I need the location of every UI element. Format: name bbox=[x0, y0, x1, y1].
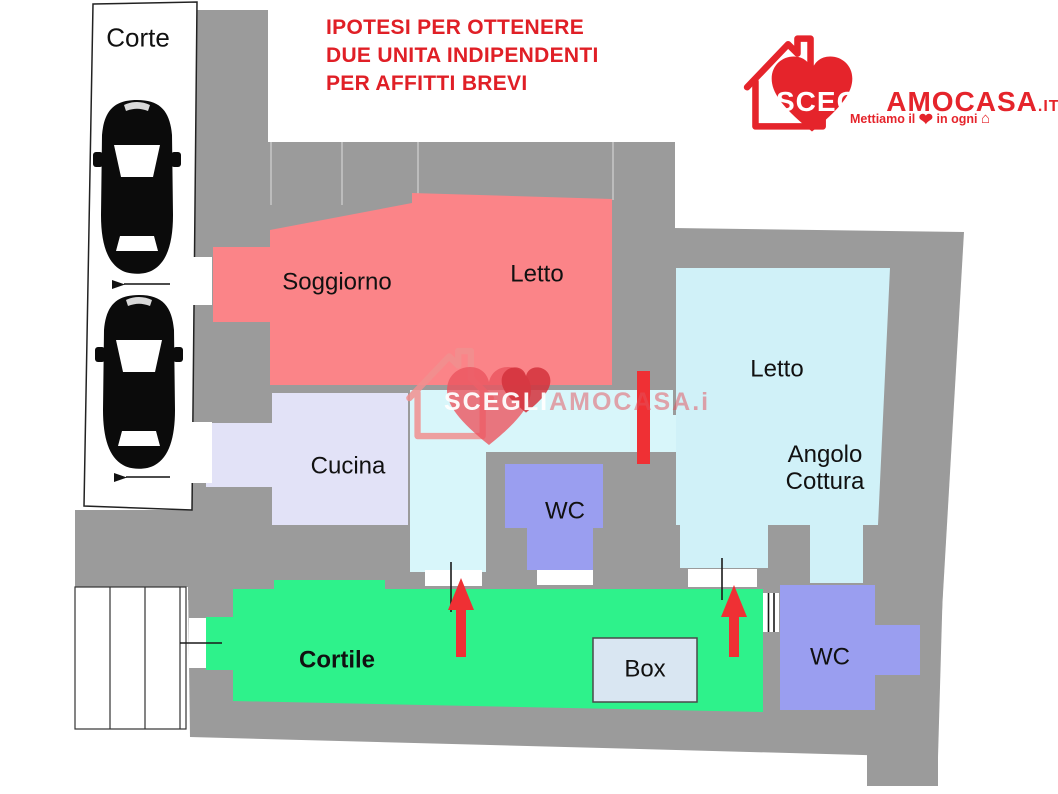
car-1 bbox=[93, 100, 181, 274]
title-line-1: IPOTESI PER OTTENERE bbox=[326, 14, 599, 42]
label-corte: Corte bbox=[106, 23, 170, 52]
label-wc-right: WC bbox=[810, 645, 850, 672]
tagline-post: in ogni bbox=[937, 112, 978, 126]
car-2 bbox=[95, 295, 183, 469]
label-wc-center: WC bbox=[545, 499, 585, 526]
label-cortile: Cortile bbox=[299, 648, 375, 675]
tagline-house-icon: ⌂ bbox=[981, 110, 990, 127]
title-line-2: DUE UNITA INDIPENDENTI bbox=[326, 42, 599, 70]
logo-tld: .IT bbox=[1038, 98, 1058, 115]
label-soggiorno: Soggiorno bbox=[282, 270, 391, 297]
tagline-pre: Mettiamo il bbox=[850, 112, 915, 126]
floorplan-page: IPOTESI PER OTTENERE DUE UNITA INDIPENDE… bbox=[0, 0, 1058, 794]
title-line-3: PER AFFITTI BREVI bbox=[326, 70, 599, 98]
new-wall-marker bbox=[637, 371, 650, 464]
label-box: Box bbox=[624, 657, 665, 684]
page-title: IPOTESI PER OTTENERE DUE UNITA INDIPENDE… bbox=[326, 14, 599, 98]
agency-logo: SCEGLIAMOCASA.IT® Mettiamo il ❤ in ogni … bbox=[726, 18, 1016, 153]
label-letto-right: Letto bbox=[750, 357, 803, 384]
label-letto-left: Letto bbox=[510, 262, 563, 289]
tagline-heart-icon: ❤ bbox=[919, 110, 933, 129]
stairs-shape bbox=[75, 587, 186, 729]
label-cucina: Cucina bbox=[311, 454, 386, 481]
logo-tagline: Mettiamo il ❤ in ogni ⌂ bbox=[850, 110, 990, 130]
label-angolo-cottura: Angolo Cottura bbox=[750, 442, 900, 496]
